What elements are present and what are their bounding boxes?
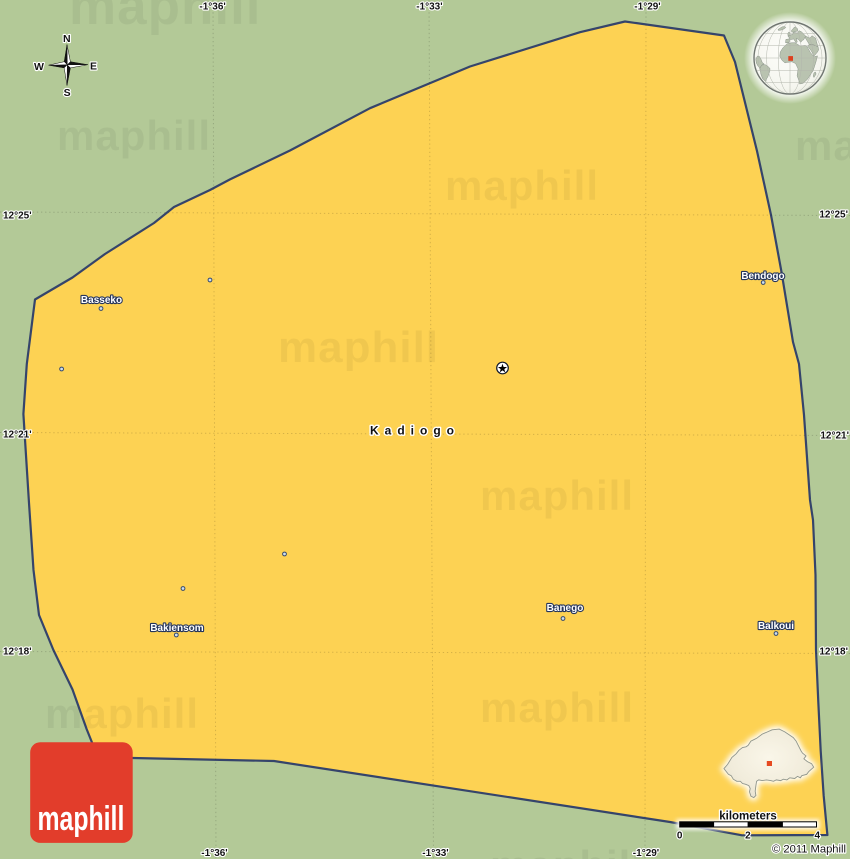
svg-text:4: 4 bbox=[815, 831, 821, 842]
svg-text:maphill: maphill bbox=[445, 162, 599, 209]
svg-text:maphill: maphill bbox=[278, 323, 439, 372]
svg-text:maphill: maphill bbox=[38, 800, 125, 838]
svg-text:Kadiogo: Kadiogo bbox=[370, 424, 460, 438]
svg-text:maphill: maphill bbox=[480, 684, 634, 731]
svg-text:12°21': 12°21' bbox=[820, 431, 849, 442]
svg-text:-1°29': -1°29' bbox=[633, 848, 659, 859]
svg-text:N: N bbox=[63, 33, 71, 45]
svg-text:E: E bbox=[90, 61, 97, 73]
svg-text:maphill: maphill bbox=[57, 112, 211, 159]
svg-text:maphill: maphill bbox=[480, 472, 634, 519]
svg-text:-1°33': -1°33' bbox=[422, 848, 448, 859]
svg-text:maphill: maphill bbox=[69, 0, 262, 36]
svg-text:Basseko: Basseko bbox=[81, 295, 122, 306]
svg-text:Bakiensom: Bakiensom bbox=[150, 623, 203, 634]
svg-text:12°25': 12°25' bbox=[819, 210, 848, 221]
svg-text:-1°36': -1°36' bbox=[199, 2, 225, 13]
svg-text:12°21': 12°21' bbox=[3, 430, 32, 441]
svg-text:maphill: maphill bbox=[795, 122, 850, 169]
svg-text:0: 0 bbox=[677, 831, 683, 842]
svg-text:12°18': 12°18' bbox=[3, 647, 32, 658]
svg-text:maphill: maphill bbox=[490, 842, 644, 859]
svg-text:Banego: Banego bbox=[547, 603, 584, 614]
svg-text:Bendogo: Bendogo bbox=[741, 271, 784, 282]
svg-text:-1°29': -1°29' bbox=[634, 2, 660, 13]
svg-text:W: W bbox=[34, 61, 44, 73]
svg-text:12°25': 12°25' bbox=[3, 211, 32, 222]
svg-text:12°18': 12°18' bbox=[819, 647, 848, 658]
svg-text:maphill: maphill bbox=[45, 690, 199, 737]
svg-text:-1°36': -1°36' bbox=[201, 848, 227, 859]
svg-text:S: S bbox=[64, 87, 71, 99]
svg-text:-1°33': -1°33' bbox=[416, 2, 442, 13]
svg-text:Balkoui: Balkoui bbox=[758, 621, 794, 632]
svg-text:© 2011 Maphill: © 2011 Maphill bbox=[772, 844, 846, 856]
svg-text:2: 2 bbox=[745, 831, 751, 842]
svg-text:kilometers: kilometers bbox=[719, 811, 777, 823]
